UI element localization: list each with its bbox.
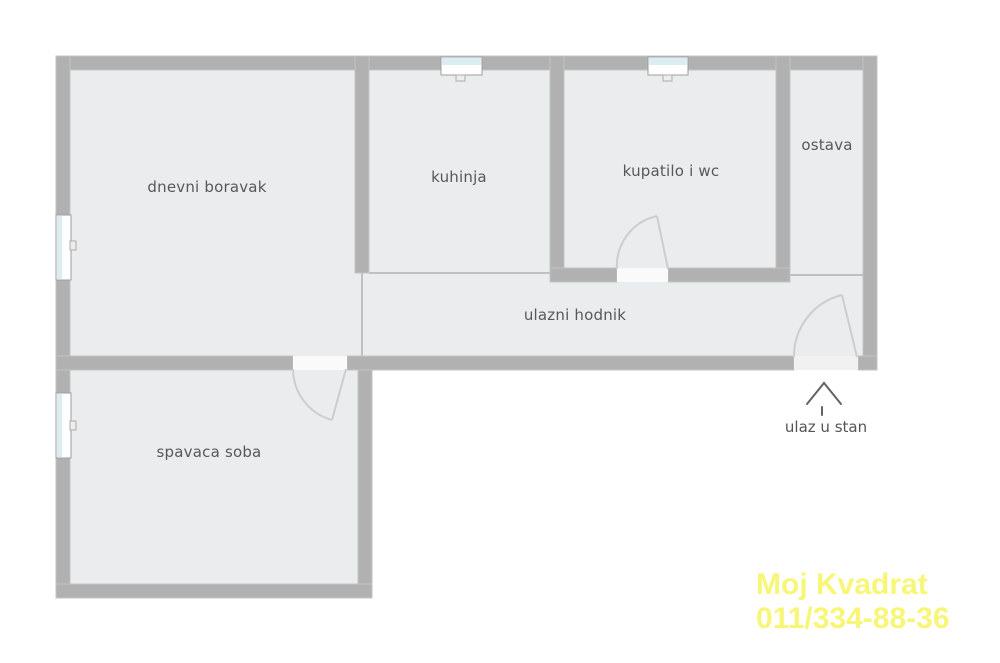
wall-bedroom-bottom bbox=[56, 584, 372, 598]
wall-bathroom-left bbox=[550, 56, 564, 282]
wall-bathroom-right bbox=[776, 56, 790, 282]
wall-right bbox=[863, 56, 877, 370]
room-label-hallway: ulazni hodnik bbox=[524, 306, 626, 324]
wall-bedroom-right bbox=[358, 370, 372, 598]
room-label-storage: ostava bbox=[801, 136, 852, 154]
wall-bathroom-bottom-left bbox=[550, 268, 617, 282]
watermark-phone: 011/334-88-36 bbox=[756, 602, 950, 636]
room-label-bedroom: spavaca soba bbox=[157, 443, 262, 461]
floors bbox=[70, 70, 868, 590]
window-glass bbox=[649, 58, 687, 65]
bathroom-door-opening bbox=[617, 268, 668, 282]
window-handle bbox=[70, 421, 76, 430]
wall-bathroom-bottom-right bbox=[668, 268, 790, 282]
watermark: Moj Kvadrat 011/334-88-36 bbox=[756, 568, 950, 636]
wall-middle-left bbox=[56, 356, 293, 370]
room-label-bathroom: kupatilo i wc bbox=[623, 162, 720, 180]
wall-middle-center bbox=[347, 356, 794, 370]
entrance-arrow-icon bbox=[807, 383, 841, 415]
window-handle bbox=[456, 75, 465, 81]
wall-middle-right bbox=[858, 356, 877, 370]
bedroom-door-opening bbox=[293, 356, 347, 370]
floor-storage bbox=[783, 70, 868, 276]
room-label-living-room: dnevni boravak bbox=[147, 178, 266, 196]
entrance-door-opening bbox=[794, 356, 858, 370]
watermark-brand: Moj Kvadrat bbox=[756, 568, 950, 602]
window-glass bbox=[57, 394, 62, 457]
room-label-kitchen: kuhinja bbox=[431, 168, 487, 186]
wall-left bbox=[56, 56, 70, 598]
floor-plan-drawing bbox=[0, 0, 1000, 663]
floor-bedroom bbox=[70, 358, 365, 590]
window-glass bbox=[442, 58, 481, 65]
window-glass bbox=[57, 216, 62, 279]
window-handle bbox=[663, 75, 672, 81]
floor-plan: dnevni boravak kuhinja kupatilo i wc ost… bbox=[0, 0, 1000, 663]
window-handle bbox=[70, 241, 76, 250]
floor-living-room bbox=[70, 70, 362, 356]
entrance-label: ulaz u stan bbox=[785, 418, 867, 436]
wall-kitchen-left bbox=[355, 56, 369, 273]
